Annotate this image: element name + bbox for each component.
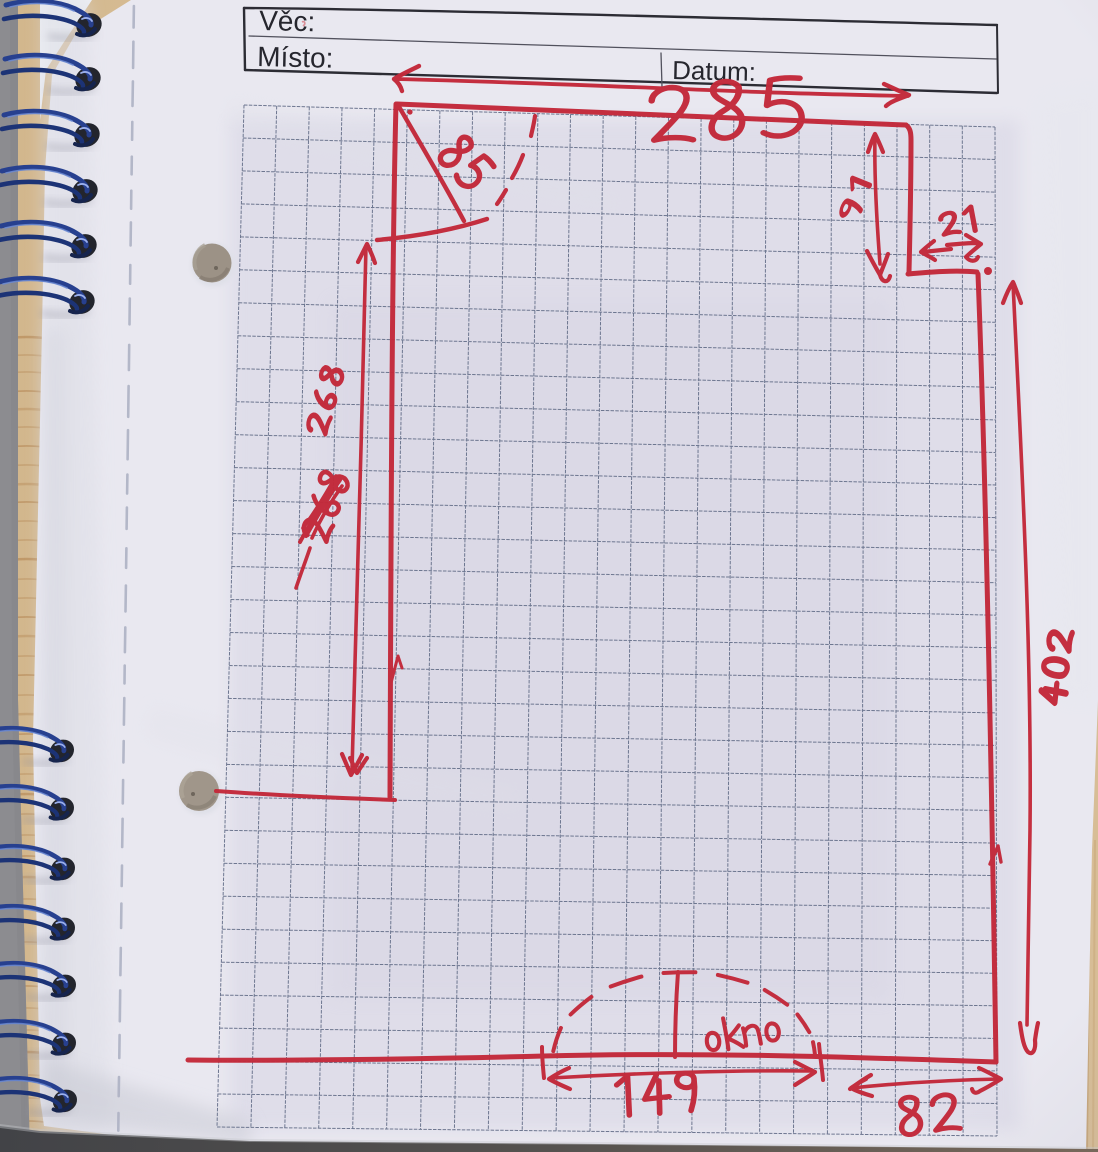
svg-text:Místo:: Místo: — [257, 41, 334, 74]
svg-text:Věc:: Věc: — [259, 5, 316, 37]
svg-text:Datum:: Datum: — [672, 55, 756, 87]
